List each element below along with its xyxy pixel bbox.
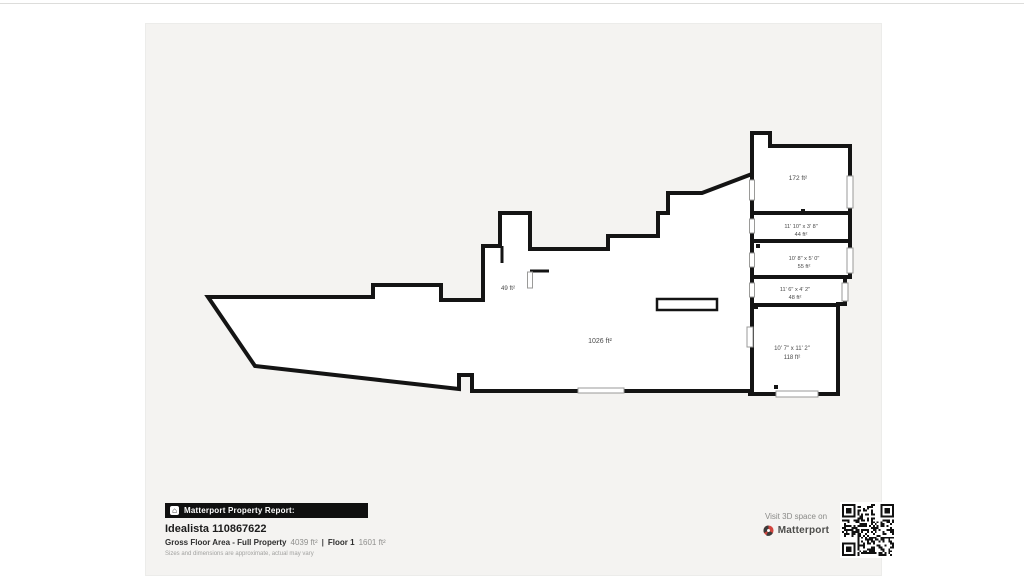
disclaimer-text: Sizes and dimensions are approximate, ac… xyxy=(165,551,314,557)
room55-dims: 10' 8" x 5' 0" xyxy=(789,256,820,262)
room44-area: 44 ft² xyxy=(795,232,808,238)
report-badge-bar: ⌂ Matterport Property Report: xyxy=(165,503,368,518)
floor-area-line: Gross Floor Area - Full Property 4039 ft… xyxy=(165,538,386,547)
screenshot-stage: 1026 ft² 49 ft² 172 ft² 11' 10" x 3' 8" … xyxy=(0,0,1024,576)
visit-3d-text: Visit 3D space on xyxy=(757,512,835,521)
room48-area: 48 ft² xyxy=(789,295,802,301)
counter-island xyxy=(657,299,717,310)
room118-area: 118 ft² xyxy=(784,355,801,361)
matterport-logo-icon xyxy=(763,525,774,536)
room55-area: 55 ft² xyxy=(798,264,811,270)
room118-dims: 10' 7" x 11' 2" xyxy=(774,346,810,352)
floor-value: 1601 ft² xyxy=(359,538,386,547)
main-area-label: 1026 ft² xyxy=(588,338,612,345)
separator: | xyxy=(322,538,324,547)
room44-dims: 11' 10" x 3' 8" xyxy=(784,224,817,230)
matterport-wordmark: Matterport xyxy=(778,525,829,536)
top-room-label: 172 ft² xyxy=(789,175,808,182)
report-badge-label: Matterport Property Report: xyxy=(184,506,295,515)
small-room-label: 49 ft² xyxy=(501,285,515,292)
qr-code xyxy=(840,502,896,558)
visit-3d-link[interactable]: Visit 3D space on Matterport xyxy=(757,512,835,536)
floor-label: Floor 1 xyxy=(328,538,355,547)
room48-dims: 11' 6" x 4' 2" xyxy=(780,287,810,293)
floor-plan: 1026 ft² 49 ft² 172 ft² 11' 10" x 3' 8" … xyxy=(0,0,1024,576)
property-name: Idealista 110867622 xyxy=(165,523,267,535)
gross-area-value: 4039 ft² xyxy=(291,538,318,547)
house-icon: ⌂ xyxy=(170,506,179,515)
gross-area-label: Gross Floor Area - Full Property xyxy=(165,538,287,547)
